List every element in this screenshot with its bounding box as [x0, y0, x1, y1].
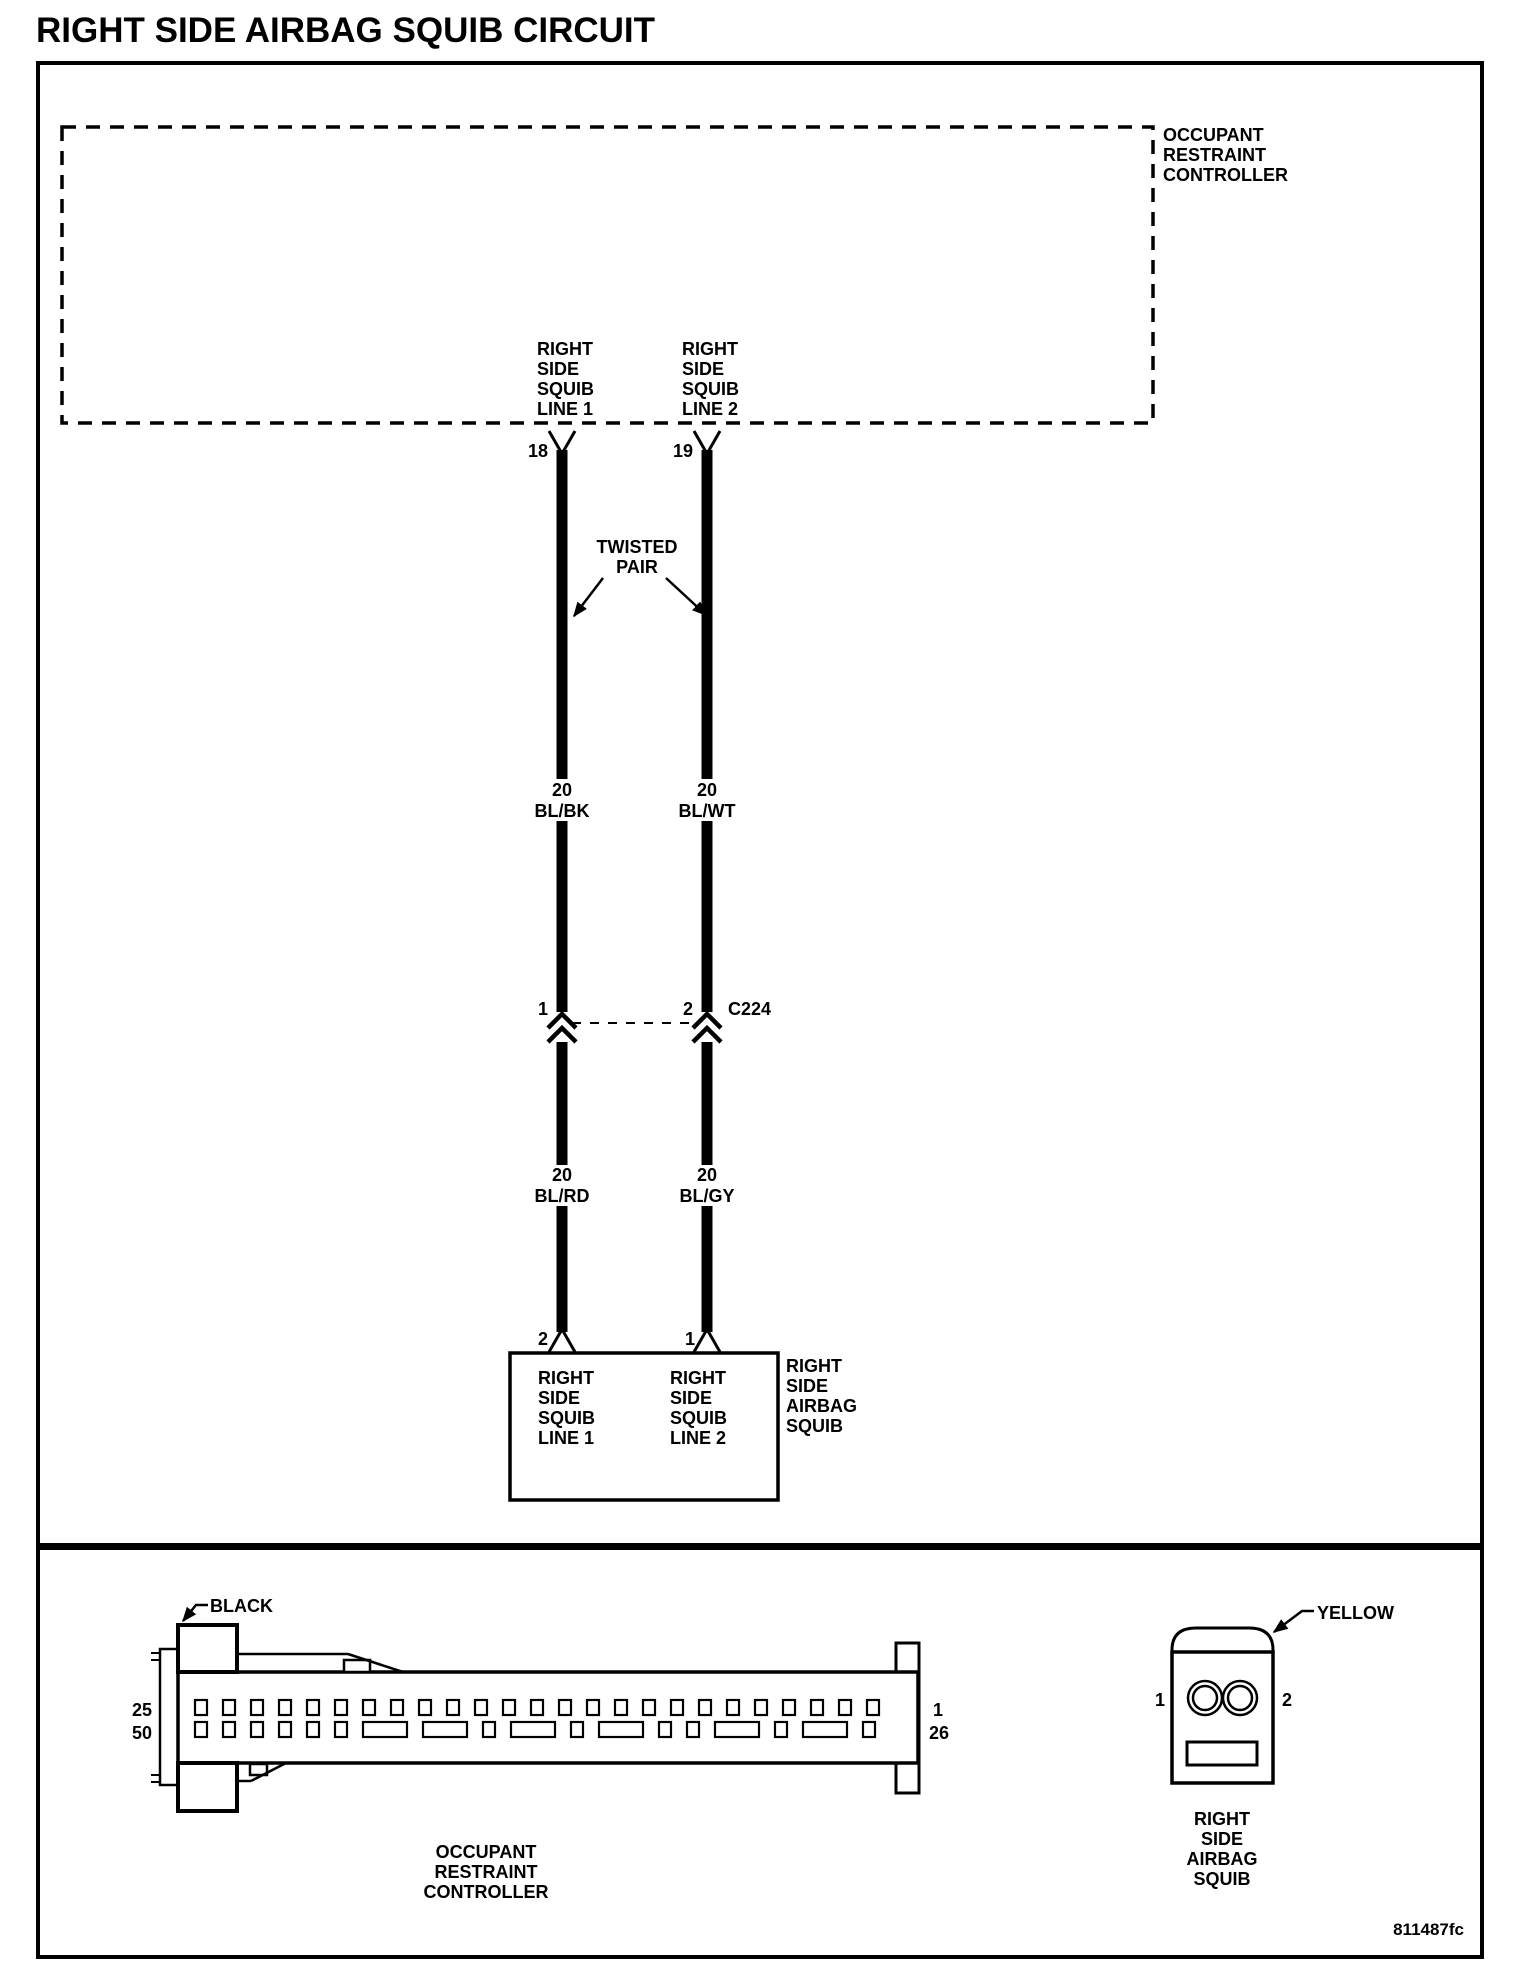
pin-19-label: 19 — [673, 441, 693, 461]
orc-pin-cavity — [659, 1722, 671, 1737]
squib-keyway-slot — [1187, 1742, 1257, 1765]
svg-text:RIGHT: RIGHT — [786, 1356, 842, 1376]
orc-pin-cavity — [307, 1700, 319, 1715]
orc-pin1-label: 1 — [933, 1700, 943, 1720]
orc-pin-cavity — [223, 1722, 235, 1737]
orc-pin-cavity — [223, 1700, 235, 1715]
orc-pin-cavity — [671, 1700, 683, 1715]
orc-pin-cavity — [335, 1700, 347, 1715]
orc-pin-cavity — [587, 1700, 599, 1715]
squib-connector-face: 1 2 YELLOW RIGHT SIDE AIRBAG SQUIB — [1155, 1603, 1394, 1889]
wire2-upper-label: 20 BL/WT — [679, 780, 736, 821]
squib-line2-terminal-label: RIGHT SIDE SQUIB LINE 2 — [682, 339, 739, 419]
orc-pin50-label: 50 — [132, 1723, 152, 1743]
squib-conn-pin2-label: 2 — [1282, 1690, 1292, 1710]
orc-pin-cavity — [599, 1722, 643, 1737]
orc-pin-cavity — [363, 1722, 407, 1737]
squib-box-line2-label: RIGHT SIDE SQUIB LINE 2 — [670, 1368, 727, 1448]
twisted-pair-annotation: TWISTED PAIR — [574, 537, 706, 616]
svg-text:AIRBAG: AIRBAG — [1187, 1849, 1258, 1869]
squib-pin1-label: 1 — [685, 1329, 695, 1349]
svg-text:RIGHT: RIGHT — [682, 339, 738, 359]
svg-text:RIGHT: RIGHT — [537, 339, 593, 359]
orc-pin-cavity — [839, 1700, 851, 1715]
orc-pin-cavity — [335, 1722, 347, 1737]
orc-pin-cavity — [863, 1722, 875, 1737]
svg-text:SQUIB: SQUIB — [538, 1408, 595, 1428]
svg-text:BL/BK: BL/BK — [535, 801, 590, 821]
orc-pin-cavity — [615, 1700, 627, 1715]
svg-text:SQUIB: SQUIB — [682, 379, 739, 399]
orc-pin-cavity — [511, 1722, 555, 1737]
c224-connector: 1 2 C224 — [538, 999, 771, 1042]
c224-pin2-label: 2 — [683, 999, 693, 1019]
svg-text:LINE 2: LINE 2 — [670, 1428, 726, 1448]
orc-pin-cavity — [279, 1700, 291, 1715]
orc-pin-cavity — [803, 1722, 847, 1737]
orc-pin-cavity — [363, 1700, 375, 1715]
svg-text:SQUIB: SQUIB — [1193, 1869, 1250, 1889]
orc-pin-cavity — [783, 1700, 795, 1715]
orc-connector-top-tab — [178, 1625, 237, 1672]
svg-text:20: 20 — [552, 1165, 572, 1185]
svg-text:AIRBAG: AIRBAG — [786, 1396, 857, 1416]
orc-box-label: OCCUPANT RESTRAINT CONTROLLER — [1163, 125, 1288, 185]
squib-cavity-1-inner — [1193, 1686, 1217, 1710]
orc-top-bump — [344, 1660, 370, 1672]
c224-chevrons-wire1 — [548, 1014, 576, 1042]
svg-text:SQUIB: SQUIB — [670, 1408, 727, 1428]
svg-text:SIDE: SIDE — [538, 1388, 580, 1408]
section-divider — [38, 1543, 1482, 1550]
orc-pin25-label: 25 — [132, 1700, 152, 1720]
twisted-pair-arrow-left — [574, 578, 603, 616]
svg-text:RESTRAINT: RESTRAINT — [435, 1862, 538, 1882]
wire1-top-fork — [549, 431, 575, 452]
orc-connector-face: 25 50 1 26 BLACK OCCUPANT RESTRAINT CONT… — [132, 1596, 949, 1902]
svg-text:SIDE: SIDE — [682, 359, 724, 379]
svg-text:SIDE: SIDE — [670, 1388, 712, 1408]
squib-connector-dome — [1172, 1628, 1273, 1652]
page-title: RIGHT SIDE AIRBAG SQUIB CIRCUIT — [36, 11, 655, 50]
diagram-code: 811487fc — [1393, 1920, 1464, 1939]
orc-pin-cavity — [811, 1700, 823, 1715]
orc-pin-cavity — [775, 1722, 787, 1737]
svg-text:BL/WT: BL/WT — [679, 801, 736, 821]
schematic: OCCUPANT RESTRAINT CONTROLLER RIGHT SIDE… — [62, 125, 1288, 1500]
orc-pin-cavity — [643, 1700, 655, 1715]
orc-pin-cavity — [531, 1700, 543, 1715]
svg-text:RIGHT: RIGHT — [670, 1368, 726, 1388]
orc-pin-cavity — [307, 1722, 319, 1737]
squib-component-label: RIGHT SIDE AIRBAG SQUIB — [786, 1356, 857, 1436]
orc-color-label: BLACK — [210, 1596, 273, 1616]
orc-pin-cavity — [195, 1722, 207, 1737]
svg-text:TWISTED: TWISTED — [597, 537, 678, 557]
svg-text:SIDE: SIDE — [1201, 1829, 1243, 1849]
orc-pin-cavity — [391, 1700, 403, 1715]
orc-pin-cavity — [699, 1700, 711, 1715]
orc-pin-cavity — [251, 1722, 263, 1737]
svg-text:LINE 1: LINE 1 — [538, 1428, 594, 1448]
orc-pin-cavity — [867, 1700, 879, 1715]
squib-cavity-2-inner — [1228, 1686, 1252, 1710]
orc-pin-cavity — [419, 1700, 431, 1715]
svg-text:RIGHT: RIGHT — [1194, 1809, 1250, 1829]
wire2-top-fork — [694, 431, 720, 452]
svg-text:BL/GY: BL/GY — [679, 1186, 734, 1206]
wire1-bottom-fork — [549, 1331, 575, 1352]
orc-pin-cavity — [195, 1700, 207, 1715]
orc-box-label-line: CONTROLLER — [1163, 165, 1288, 185]
svg-text:LINE 2: LINE 2 — [682, 399, 738, 419]
wiring-diagram-svg: RIGHT SIDE AIRBAG SQUIB CIRCUIT OCCUPANT… — [0, 0, 1520, 1982]
squib-color-arrow — [1274, 1611, 1314, 1632]
orc-pin-cavity — [503, 1700, 515, 1715]
svg-text:SIDE: SIDE — [786, 1376, 828, 1396]
wire1-upper-label: 20 BL/BK — [535, 780, 590, 821]
squib-line1-terminal-label: RIGHT SIDE SQUIB LINE 1 — [537, 339, 594, 419]
svg-text:20: 20 — [697, 1165, 717, 1185]
c224-pin1-label: 1 — [538, 999, 548, 1019]
wire1-lower-label: 20 BL/RD — [535, 1165, 590, 1206]
orc-connector-caption: OCCUPANT RESTRAINT CONTROLLER — [424, 1842, 549, 1902]
svg-text:20: 20 — [697, 780, 717, 800]
svg-text:LINE 1: LINE 1 — [537, 399, 593, 419]
orc-box-label-line: OCCUPANT — [1163, 125, 1264, 145]
svg-text:SQUIB: SQUIB — [786, 1416, 843, 1436]
pin-18-label: 18 — [528, 441, 548, 461]
orc-pin-cavity — [447, 1700, 459, 1715]
squib-pin2-label: 2 — [538, 1329, 548, 1349]
svg-text:SQUIB: SQUIB — [537, 379, 594, 399]
orc-connector-body — [178, 1672, 918, 1763]
squib-box-line1-label: RIGHT SIDE SQUIB LINE 1 — [538, 1368, 595, 1448]
orc-pin-cavity — [687, 1722, 699, 1737]
c224-chevrons-wire2 — [693, 1014, 721, 1042]
svg-text:PAIR: PAIR — [616, 557, 658, 577]
wire2-lower-label: 20 BL/GY — [679, 1165, 734, 1206]
orc-pin-cavity — [251, 1700, 263, 1715]
orc-pin-cavity — [571, 1722, 583, 1737]
wire2-bottom-fork — [694, 1331, 720, 1352]
squib-conn-pin1-label: 1 — [1155, 1690, 1165, 1710]
orc-pin26-label: 26 — [929, 1723, 949, 1743]
wiring-diagram-page: RIGHT SIDE AIRBAG SQUIB CIRCUIT OCCUPANT… — [0, 0, 1520, 1982]
orc-dashed-box — [62, 127, 1153, 423]
svg-text:20: 20 — [552, 780, 572, 800]
svg-text:SIDE: SIDE — [537, 359, 579, 379]
orc-color-arrow — [183, 1605, 208, 1621]
orc-pin-cavity — [483, 1722, 495, 1737]
c224-name-label: C224 — [728, 999, 771, 1019]
svg-text:OCCUPANT: OCCUPANT — [436, 1842, 537, 1862]
orc-pin-cavity — [279, 1722, 291, 1737]
orc-connector-bottom-tab — [178, 1763, 237, 1811]
squib-connector-caption: RIGHT SIDE AIRBAG SQUIB — [1187, 1809, 1258, 1889]
orc-box-label-line: RESTRAINT — [1163, 145, 1266, 165]
orc-pin-cavity — [559, 1700, 571, 1715]
orc-pin-cavity — [727, 1700, 739, 1715]
squib-color-label: YELLOW — [1317, 1603, 1394, 1623]
orc-pin-cavity — [475, 1700, 487, 1715]
orc-pin-cavity — [715, 1722, 759, 1737]
orc-pin-cavity — [423, 1722, 467, 1737]
svg-text:BL/RD: BL/RD — [535, 1186, 590, 1206]
orc-pin-cavity — [755, 1700, 767, 1715]
orc-connector-left-cap — [160, 1649, 178, 1785]
svg-text:CONTROLLER: CONTROLLER — [424, 1882, 549, 1902]
svg-text:RIGHT: RIGHT — [538, 1368, 594, 1388]
twisted-pair-arrow-right — [666, 578, 706, 615]
